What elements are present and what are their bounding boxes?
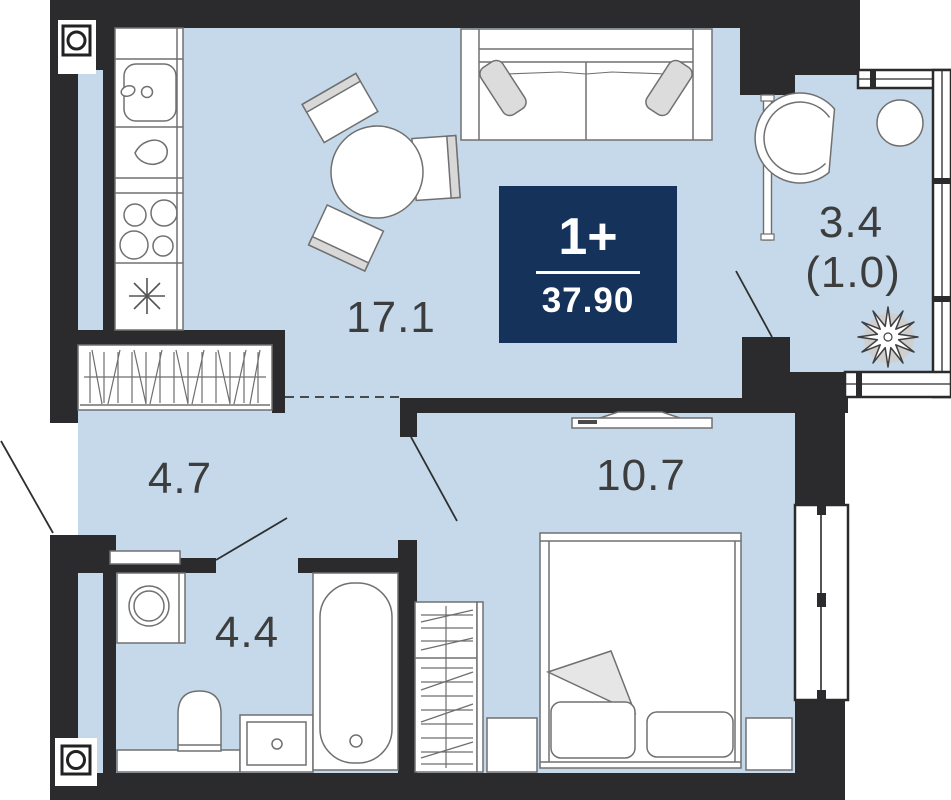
hallway-wardrobe <box>78 345 272 410</box>
bathroom-vanity <box>240 715 313 772</box>
dining-table <box>331 126 423 218</box>
vent-duct-icon <box>55 738 97 786</box>
badge-divider <box>536 271 640 274</box>
room-label-balcony: 3.4 <box>819 198 883 248</box>
balcony-armchair <box>755 93 834 183</box>
hallway-shelf <box>110 551 180 564</box>
room-label-bedroom: 10.7 <box>596 451 686 501</box>
unit-type-label: 1+ <box>558 211 617 263</box>
bedroom-window <box>795 505 848 700</box>
balcony-table <box>877 100 923 146</box>
nightstand <box>746 718 792 770</box>
entry-door-swing <box>1 441 53 533</box>
bed <box>540 533 741 768</box>
bathtub-icon <box>313 573 398 770</box>
bedroom-wardrobe <box>415 602 483 772</box>
floor-plan: 17.1 4.7 4.4 10.7 3.4 (1.0) 1+ 37.90 <box>0 0 951 800</box>
balcony-right-window <box>933 70 951 397</box>
pillow-icon <box>551 702 635 758</box>
room-label-hallway: 4.7 <box>148 454 212 504</box>
room-label-balcony-reduced: (1.0) <box>805 248 900 298</box>
kitchen-sink-icon <box>120 64 176 121</box>
pillow-icon <box>647 712 733 757</box>
balcony-bottom-window <box>845 372 951 397</box>
entry-doorway <box>50 423 78 535</box>
sofa <box>461 29 712 140</box>
unit-info-badge: 1+ 37.90 <box>499 186 677 343</box>
room-label-bathroom: 4.4 <box>215 608 279 658</box>
toilet-icon <box>178 691 221 751</box>
unit-total-area: 37.90 <box>542 283 635 318</box>
washing-machine-icon <box>117 573 185 643</box>
bathroom-counter <box>117 750 240 772</box>
vent-duct-icon <box>58 20 96 74</box>
nightstand <box>487 718 537 772</box>
room-label-living-kitchen: 17.1 <box>346 293 436 343</box>
plan-drawing <box>0 0 951 800</box>
asterisk-icon <box>129 278 165 314</box>
